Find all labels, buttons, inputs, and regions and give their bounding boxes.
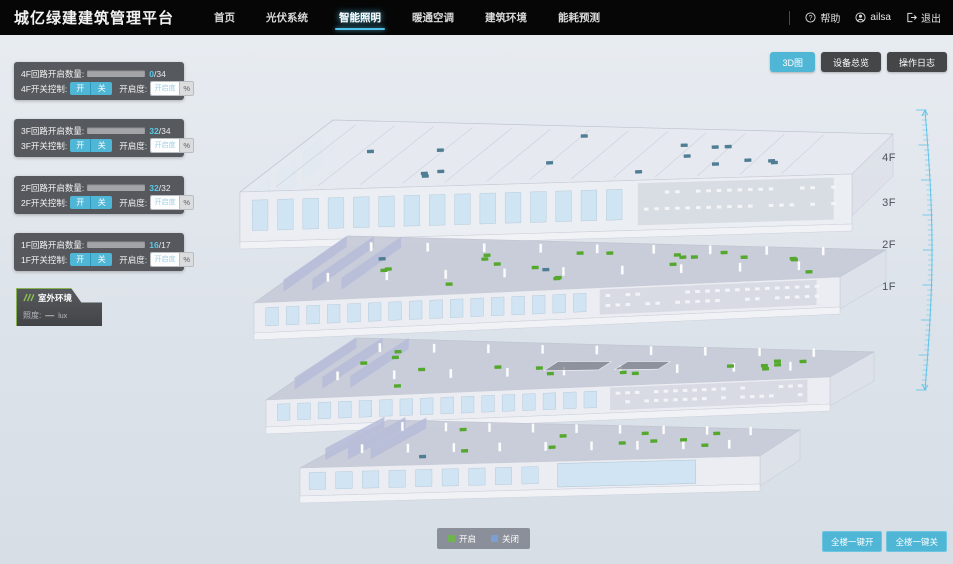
floor-selector-2f[interactable]: 2F [882, 239, 896, 251]
dim-input-group: % [150, 252, 194, 267]
switch-control-label: 4F开关控制: [21, 83, 67, 95]
dim-level-label: 开启度: [119, 197, 147, 209]
switch-off-button[interactable]: 关 [91, 253, 112, 266]
dim-level-input[interactable] [151, 82, 179, 95]
floor-selector-1f[interactable]: 1F [882, 281, 896, 293]
header: 城亿绿建建筑管理平台 首页 光伏系统 智能照明 暖通空调 建筑环境 能耗预测 ?… [0, 0, 953, 35]
dim-level-input[interactable] [151, 196, 179, 209]
header-user-area: ? 帮助 ailsa 退出 [789, 10, 941, 25]
switch-control-label: 1F开关控制: [21, 254, 67, 266]
circuit-progress-bar [87, 184, 145, 191]
nav-item-energy-forecast[interactable]: 能耗预测 [556, 0, 602, 35]
dim-level-label: 开启度: [119, 140, 147, 152]
circuit-count-value: 0/34 [149, 69, 166, 79]
legend-on: 开启 [448, 533, 476, 545]
floor-selector-4f[interactable]: 4F [882, 152, 896, 164]
circuit-count-label: 1F回路开启数量: [21, 239, 84, 251]
bulk-actions: 全楼一键开 全楼一键关 [822, 531, 947, 552]
switch-group: 开关 [70, 196, 112, 209]
view-switcher: 3D图 设备总览 操作日志 [770, 52, 947, 72]
header-divider [789, 11, 790, 25]
nav-item-building-env[interactable]: 建筑环境 [483, 0, 529, 35]
switch-off-button[interactable]: 关 [91, 82, 112, 95]
circuit-count-label: 4F回路开启数量: [21, 68, 84, 80]
sun-rays-icon [23, 293, 34, 304]
building-3d-model [0, 35, 953, 564]
switch-group: 开关 [70, 82, 112, 95]
circuit-progress-bar [87, 127, 145, 134]
floor-card-1f: 1F回路开启数量: 16/17 1F开关控制: 开关 开启度: % [14, 233, 184, 271]
username: ailsa [870, 12, 891, 23]
nav-item-pv-system[interactable]: 光伏系统 [264, 0, 310, 35]
switch-on-button[interactable]: 开 [70, 253, 91, 266]
logout-button[interactable]: 退出 [906, 10, 941, 25]
device-overview-button[interactable]: 设备总览 [821, 52, 881, 72]
main-nav: 首页 光伏系统 智能照明 暖通空调 建筑环境 能耗预测 [212, 0, 602, 35]
circuit-progress-bar [87, 241, 145, 248]
operation-log-button[interactable]: 操作日志 [887, 52, 947, 72]
dim-input-group: % [150, 195, 194, 210]
nav-item-smart-lighting[interactable]: 智能照明 [337, 0, 383, 35]
help-icon: ? [805, 12, 816, 23]
legend-off-swatch [491, 535, 498, 542]
all-on-button[interactable]: 全楼一键开 [822, 531, 883, 552]
outdoor-card-title: 室外环境 [38, 292, 72, 304]
dim-level-input[interactable] [151, 139, 179, 152]
app-title: 城亿绿建建筑管理平台 [14, 7, 174, 28]
percent-suffix: % [179, 139, 193, 152]
switch-on-button[interactable]: 开 [70, 139, 91, 152]
svg-text:?: ? [809, 15, 813, 22]
circuit-count-label: 2F回路开启数量: [21, 182, 84, 194]
switch-on-button[interactable]: 开 [70, 82, 91, 95]
percent-suffix: % [179, 82, 193, 95]
all-off-button[interactable]: 全楼一键关 [886, 531, 947, 552]
illuminance-label: 照度: [23, 310, 41, 321]
dim-level-label: 开启度: [119, 83, 147, 95]
floor-card-2f: 2F回路开启数量: 32/32 2F开关控制: 开关 开启度: % [14, 176, 184, 214]
percent-suffix: % [179, 253, 193, 266]
floor-card-4f: 4F回路开启数量: 0/34 4F开关控制: 开关 开启度: % [14, 62, 184, 100]
switch-on-button[interactable]: 开 [70, 196, 91, 209]
circuit-progress-bar [87, 70, 145, 77]
switch-off-button[interactable]: 关 [91, 139, 112, 152]
switch-control-label: 3F开关控制: [21, 140, 67, 152]
illuminance-unit: lux [58, 313, 67, 320]
nav-item-home[interactable]: 首页 [212, 0, 237, 35]
view-3d-button[interactable]: 3D图 [770, 52, 815, 72]
legend-on-swatch [448, 535, 455, 542]
building-3d-viewport[interactable] [0, 35, 953, 564]
nav-item-hvac[interactable]: 暖通空调 [410, 0, 456, 35]
percent-suffix: % [179, 196, 193, 209]
switch-group: 开关 [70, 253, 112, 266]
circuit-count-label: 3F回路开启数量: [21, 125, 84, 137]
marker-legend: 开启 关闭 [437, 528, 530, 549]
floor-card-3f: 3F回路开启数量: 32/34 3F开关控制: 开关 开启度: % [14, 119, 184, 157]
logout-icon [906, 12, 917, 23]
circuit-count-value: 32/32 [149, 183, 170, 193]
switch-control-label: 2F开关控制: [21, 197, 67, 209]
user-icon [855, 12, 866, 23]
circuit-count-value: 32/34 [149, 126, 170, 136]
circuit-count-value: 16/17 [149, 240, 170, 250]
floor-selector-3f[interactable]: 3F [882, 197, 896, 209]
vertical-scale-ruler [901, 100, 945, 400]
user-menu[interactable]: ailsa [855, 12, 891, 23]
dim-input-group: % [150, 138, 194, 153]
switch-off-button[interactable]: 关 [91, 196, 112, 209]
dim-level-input[interactable] [151, 253, 179, 266]
illuminance-value: — [45, 310, 54, 320]
legend-off: 关闭 [491, 533, 519, 545]
dim-input-group: % [150, 81, 194, 96]
switch-group: 开关 [70, 139, 112, 152]
help-button[interactable]: ? 帮助 [805, 10, 840, 25]
dim-level-label: 开启度: [119, 254, 147, 266]
